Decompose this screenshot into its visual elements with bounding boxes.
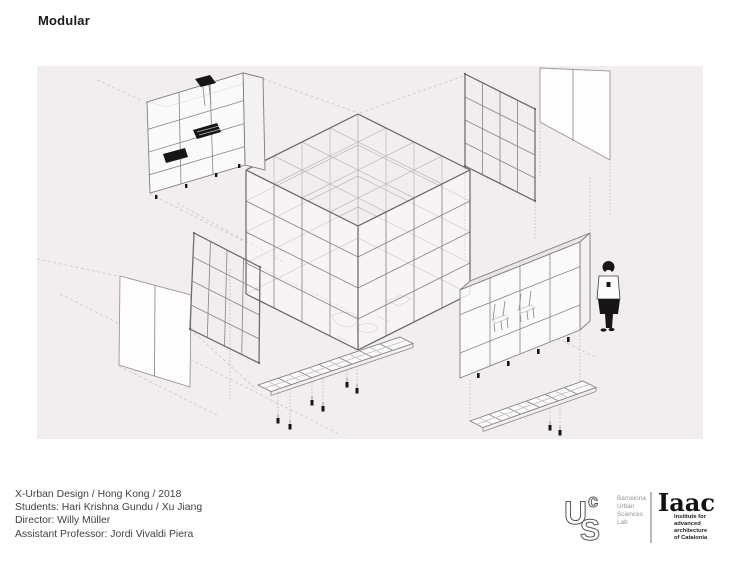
platform-feet-drawing xyxy=(277,366,562,436)
furniture-module-right-drawing xyxy=(460,233,590,378)
project-credits: X-Urban Design / Hong Kong / 2018 Studen… xyxy=(15,488,202,541)
blank-panel-left-drawing xyxy=(119,276,191,387)
grid-panel-upper-right-drawing xyxy=(464,73,536,202)
page-title: Modular xyxy=(38,13,90,28)
bus-label-line: Lab xyxy=(617,519,628,526)
iaac-label-line: architecture xyxy=(674,528,708,534)
floor-platforms-drawing xyxy=(258,337,596,432)
exploded-axonometric-drawing xyxy=(37,66,703,439)
credit-line-students: Students: Hari Krishna Gundu / Xu Jiang xyxy=(15,501,202,514)
iaac-label-line: Institute for xyxy=(674,514,707,520)
central-frame-structure-drawing xyxy=(246,114,470,350)
iaac-label-line: of Catalonia xyxy=(674,535,708,541)
iaac-label-line: advanced xyxy=(674,521,701,527)
blank-panels-upper-right-drawing xyxy=(540,68,610,160)
bus-label-line: Urban xyxy=(617,503,635,510)
credit-line-director: Director: Willy Müller xyxy=(15,514,202,527)
bus-logo: U c S Barcelona Urban Sciences Lab xyxy=(564,491,646,547)
drawing-canvas xyxy=(37,66,703,439)
credit-line-project: X-Urban Design / Hong Kong / 2018 xyxy=(15,488,202,501)
institution-logos: U c S Barcelona Urban Sciences Lab Iaac … xyxy=(560,486,720,553)
human-figure xyxy=(597,261,620,332)
bus-letter-s: S xyxy=(580,514,600,547)
iaac-wordmark: Iaac xyxy=(658,488,715,517)
bus-label-line: Sciences xyxy=(617,511,643,518)
presentation-board: Modular X-Urban Design / Hong Kong / 201… xyxy=(0,0,730,564)
bus-label-line: Barcelona xyxy=(617,495,646,502)
iaac-logo: Iaac Institute for advanced architecture… xyxy=(658,488,715,541)
credit-line-assistant: Assistant Professor: Jordi Vivaldi Piera xyxy=(15,528,202,541)
bus-letter-c: c xyxy=(588,491,598,511)
